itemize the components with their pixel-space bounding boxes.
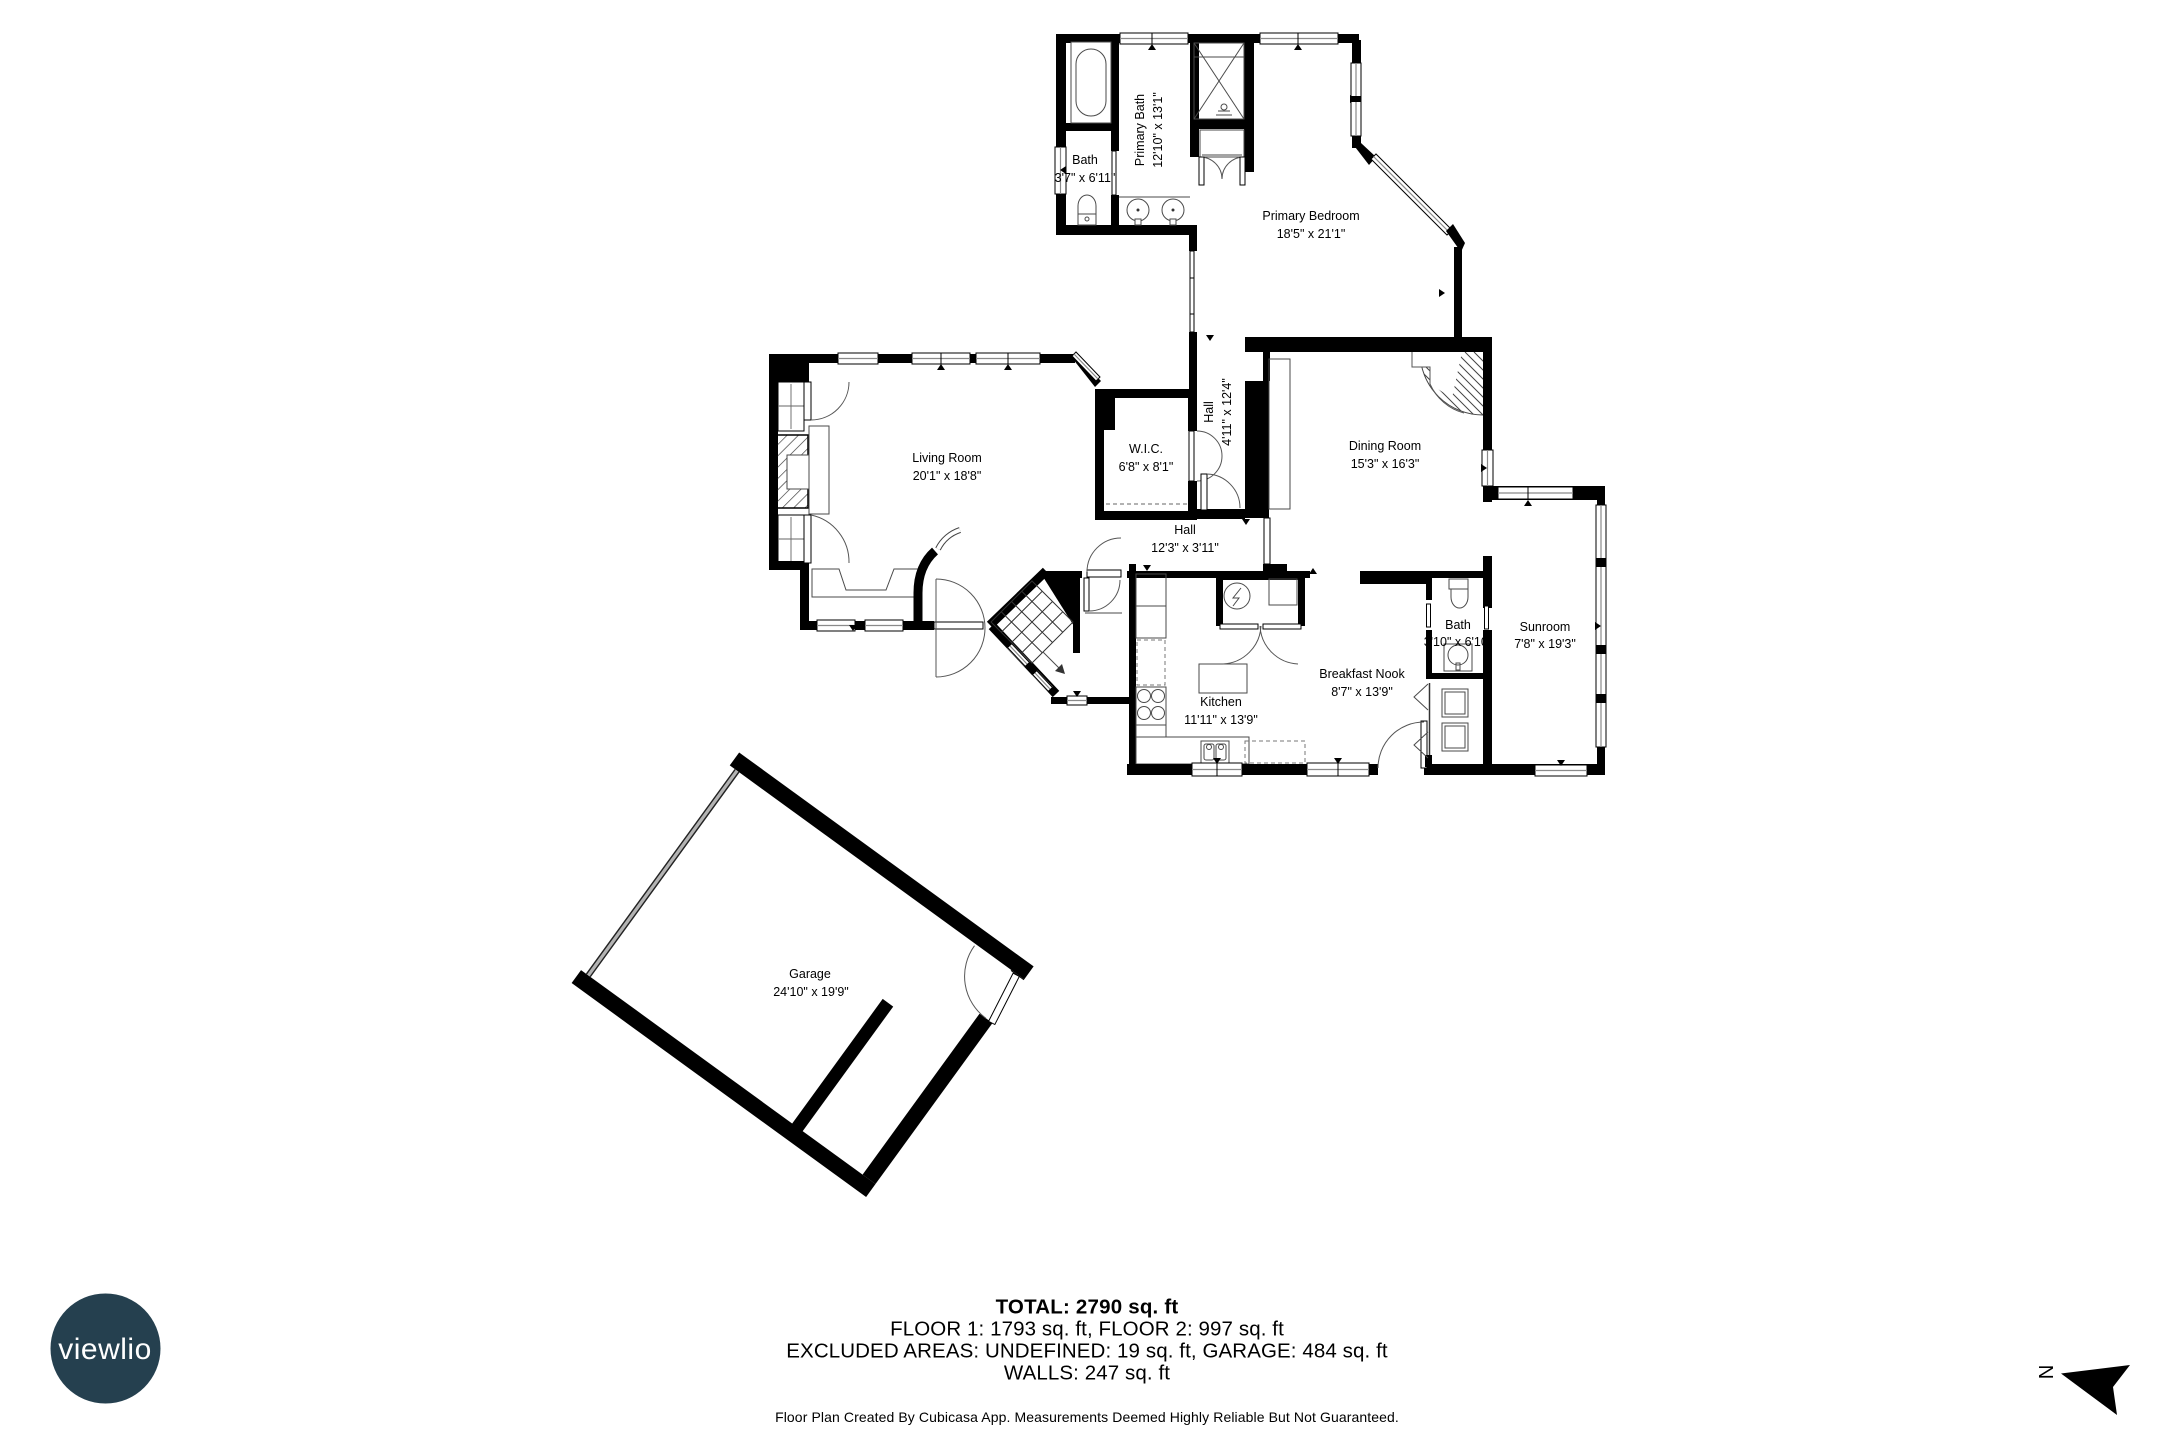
svg-text:8'7" x 13'9": 8'7" x 13'9" <box>1331 685 1393 699</box>
svg-text:3'10" x 6'10": 3'10" x 6'10" <box>1424 635 1493 649</box>
svg-text:Sunroom: Sunroom <box>1520 620 1571 634</box>
svg-text:viewlio: viewlio <box>58 1333 152 1366</box>
svg-text:TOTAL: 2790 sq. ft: TOTAL: 2790 sq. ft <box>996 1296 1179 1319</box>
svg-text:Primary Bath: Primary Bath <box>1133 94 1147 166</box>
svg-text:W.I.C.: W.I.C. <box>1129 442 1163 456</box>
svg-text:EXCLUDED AREAS: UNDEFINED: 19: EXCLUDED AREAS: UNDEFINED: 19 sq. ft, GA… <box>786 1340 1388 1363</box>
svg-text:Hall: Hall <box>1174 523 1196 537</box>
svg-text:20'1" x 18'8": 20'1" x 18'8" <box>913 469 982 483</box>
svg-text:7'8" x 19'3": 7'8" x 19'3" <box>1514 637 1576 651</box>
svg-text:24'10" x 19'9": 24'10" x 19'9" <box>773 985 849 999</box>
svg-text:N: N <box>2034 1365 2056 1379</box>
svg-text:Bath: Bath <box>1445 618 1471 632</box>
svg-text:WALLS: 247 sq. ft: WALLS: 247 sq. ft <box>1004 1362 1170 1385</box>
svg-text:Garage: Garage <box>789 967 831 981</box>
svg-text:11'11" x 13'9": 11'11" x 13'9" <box>1184 713 1258 727</box>
svg-text:Hall: Hall <box>1202 401 1216 423</box>
svg-text:18'5" x 21'1": 18'5" x 21'1" <box>1277 227 1346 241</box>
svg-text:12'10" x 13'1": 12'10" x 13'1" <box>1151 92 1165 168</box>
svg-text:15'3" x 16'3": 15'3" x 16'3" <box>1351 457 1420 471</box>
svg-text:Primary Bedroom: Primary Bedroom <box>1262 209 1359 223</box>
svg-text:4'11" x 12'4": 4'11" x 12'4" <box>1220 378 1234 446</box>
svg-text:Living Room: Living Room <box>912 451 981 465</box>
svg-text:3'7" x 6'11": 3'7" x 6'11" <box>1055 171 1116 185</box>
svg-text:Breakfast Nook: Breakfast Nook <box>1319 667 1405 681</box>
svg-text:Floor Plan Created By Cubicasa: Floor Plan Created By Cubicasa App. Meas… <box>775 1409 1399 1425</box>
svg-text:Dining Room: Dining Room <box>1349 439 1421 453</box>
svg-text:Kitchen: Kitchen <box>1200 695 1242 709</box>
svg-text:Bath: Bath <box>1072 153 1098 167</box>
svg-text:FLOOR 1: 1793 sq. ft, FLOOR 2:: FLOOR 1: 1793 sq. ft, FLOOR 2: 997 sq. f… <box>890 1318 1284 1341</box>
svg-text:12'3" x 3'11": 12'3" x 3'11" <box>1151 541 1219 555</box>
svg-text:6'8" x 8'1": 6'8" x 8'1" <box>1119 460 1174 474</box>
